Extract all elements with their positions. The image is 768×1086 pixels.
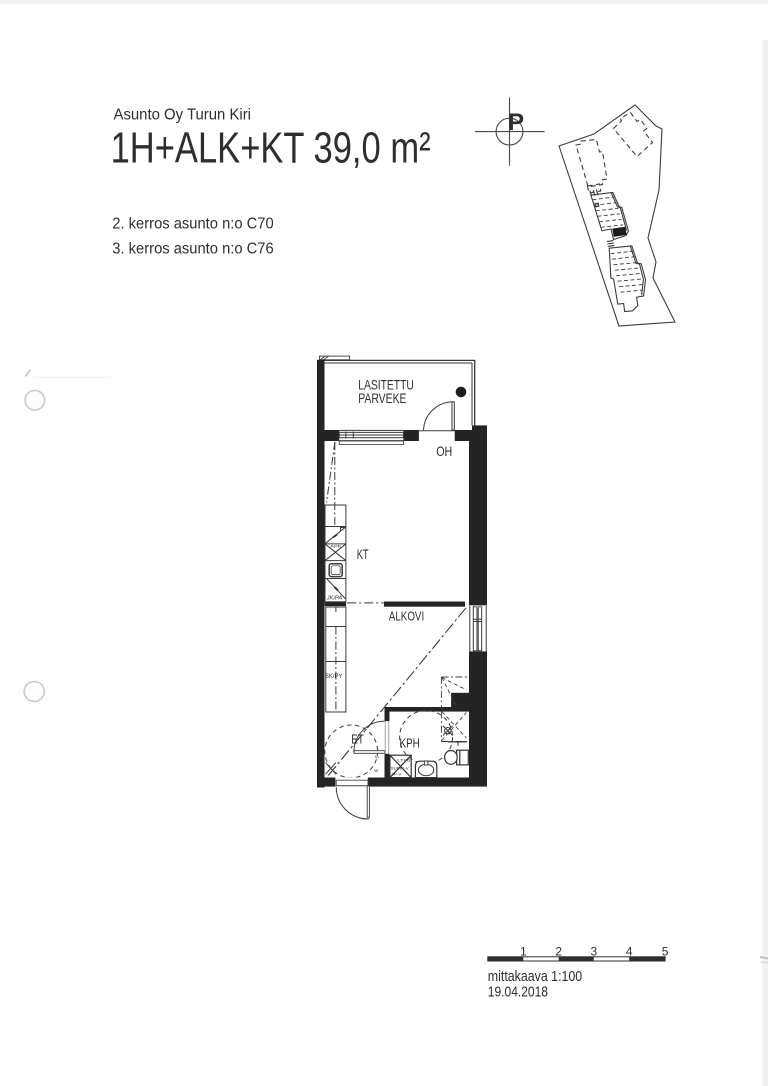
svg-text:9E: 9E [374, 768, 379, 773]
svg-text:LT06: LT06 [397, 758, 411, 763]
svg-text:9F-V: 9F-V [392, 771, 402, 776]
svg-text:1: 1 [520, 944, 527, 958]
svg-text:5: 5 [662, 944, 669, 958]
svg-text:1H+ALK+KT 39,0 m²: 1H+ALK+KT 39,0 m² [111, 124, 431, 173]
svg-text:4: 4 [626, 944, 633, 958]
svg-text:KPH: KPH [400, 735, 420, 750]
svg-text:KT: KT [357, 546, 369, 562]
svg-text:h=: h= [375, 754, 380, 759]
svg-text:PARVEKE: PARVEKE [358, 391, 406, 406]
svg-text:19.04.2018: 19.04.2018 [488, 983, 548, 1000]
svg-text:P: P [508, 109, 524, 136]
svg-text:2. kerros asunto n:o C70: 2. kerros asunto n:o C70 [112, 216, 274, 233]
svg-text:ET: ET [351, 732, 364, 747]
svg-text:APK: APK [330, 544, 341, 549]
svg-text:ALKOVI: ALKOVI [389, 610, 424, 624]
svg-text:SUIHK-V: SUIHK-V [391, 766, 409, 771]
svg-text:3: 3 [590, 944, 597, 958]
svg-text:2: 2 [555, 944, 562, 958]
svg-text:Asunto Oy Turun Kiri: Asunto Oy Turun Kiri [114, 107, 252, 124]
svg-text:SK/PY: SK/PY [325, 674, 343, 680]
svg-text:3. kerros asunto n:o C76: 3. kerros asunto n:o C76 [112, 241, 273, 258]
svg-text:OH: OH [436, 443, 452, 459]
svg-text:JK/PA: JK/PA [325, 596, 342, 602]
